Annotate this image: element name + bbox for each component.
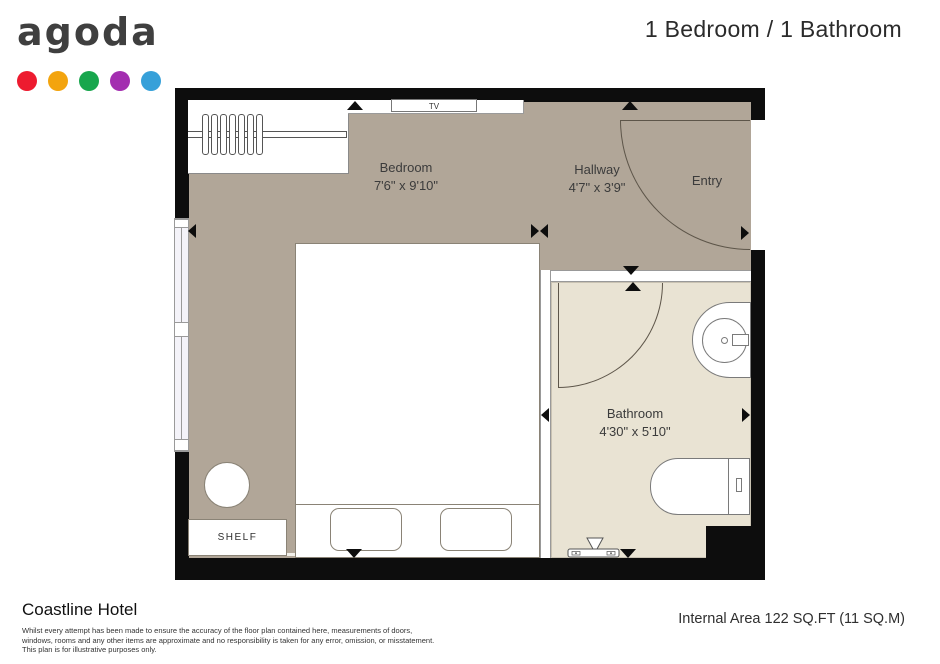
bed bbox=[295, 243, 540, 558]
wall-notch bbox=[706, 526, 765, 580]
brand-dot-blue bbox=[141, 71, 161, 91]
hotel-name: Coastline Hotel bbox=[22, 600, 137, 620]
window-mullion bbox=[175, 439, 188, 451]
shower-icon bbox=[567, 536, 621, 558]
room-label-hallway: Hallway 4'7" x 3'9" bbox=[522, 161, 672, 197]
hanger-icon bbox=[211, 114, 218, 155]
room-name: Hallway bbox=[522, 161, 672, 179]
pillow bbox=[330, 508, 402, 551]
hanger-icon bbox=[256, 114, 263, 155]
wall-marker-down-icon bbox=[620, 549, 636, 558]
disclaimer-text: Whilst every attempt has been made to en… bbox=[22, 626, 434, 655]
internal-area-label: Internal Area 122 SQ.FT (11 SQ.M) bbox=[678, 611, 905, 627]
disclaimer-line: windows, rooms and any other items are a… bbox=[22, 636, 434, 646]
room-label-bedroom: Bedroom 7'6" x 9'10" bbox=[331, 159, 481, 195]
pillow bbox=[440, 508, 512, 551]
sink-tap-icon bbox=[732, 334, 749, 346]
agoda-logo: agoda bbox=[17, 10, 159, 54]
flush-button-icon bbox=[736, 478, 742, 492]
toilet-tank-divider bbox=[728, 459, 729, 514]
wall-marker-up-icon bbox=[347, 101, 363, 110]
sink-drain-icon bbox=[721, 337, 728, 344]
wall-marker-left-icon bbox=[188, 224, 196, 238]
room-dimensions: 7'6" x 9'10" bbox=[331, 177, 481, 195]
wall-marker-right-icon bbox=[531, 224, 539, 238]
hanger-icon bbox=[220, 114, 227, 155]
hanger-icon bbox=[202, 114, 209, 155]
hanger-icon bbox=[247, 114, 254, 155]
shelf: SHELF bbox=[188, 519, 287, 556]
wall-marker-up-icon bbox=[625, 282, 641, 291]
toilet bbox=[650, 458, 750, 515]
room-name: Entry bbox=[667, 172, 747, 190]
blanket-line bbox=[296, 504, 539, 505]
wall-marker-up-icon bbox=[622, 101, 638, 110]
brand-dot-orange bbox=[48, 71, 68, 91]
brand-dot-purple bbox=[110, 71, 130, 91]
bathroom-wall-horizontal bbox=[551, 270, 751, 282]
wall-marker-left-icon bbox=[540, 224, 548, 238]
room-dimensions: 4'7" x 3'9" bbox=[522, 179, 672, 197]
wall-marker-right-icon bbox=[741, 226, 749, 240]
disclaimer-line: This plan is for illustrative purposes o… bbox=[22, 645, 434, 655]
closet bbox=[188, 100, 349, 174]
window bbox=[174, 218, 189, 452]
room-name: Bedroom bbox=[331, 159, 481, 177]
floorplan-title: 1 Bedroom / 1 Bathroom bbox=[645, 16, 902, 43]
hangers bbox=[202, 114, 263, 155]
hanger-icon bbox=[238, 114, 245, 155]
wall-marker-down-icon bbox=[346, 549, 362, 558]
floor-plan: TV SHELF bbox=[175, 88, 765, 580]
window-mullion bbox=[175, 322, 188, 337]
brand-dot-red bbox=[17, 71, 37, 91]
tv-unit: TV bbox=[391, 99, 477, 112]
room-dimensions: 4'30" x 5'10" bbox=[560, 423, 710, 441]
wall-marker-down-icon bbox=[623, 266, 639, 275]
disclaimer-line: Whilst every attempt has been made to en… bbox=[22, 626, 434, 636]
wall-marker-right-icon bbox=[742, 408, 750, 422]
entry-door-opening bbox=[751, 120, 765, 250]
hanger-icon bbox=[229, 114, 236, 155]
logo-dots bbox=[17, 71, 161, 91]
window-mullion bbox=[175, 219, 188, 228]
room-label-entry: Entry bbox=[667, 172, 747, 190]
stool bbox=[204, 462, 250, 508]
room-name: Bathroom bbox=[560, 405, 710, 423]
brand-dot-green bbox=[79, 71, 99, 91]
wall-marker-left-icon bbox=[541, 408, 549, 422]
room-label-bathroom: Bathroom 4'30" x 5'10" bbox=[560, 405, 710, 441]
